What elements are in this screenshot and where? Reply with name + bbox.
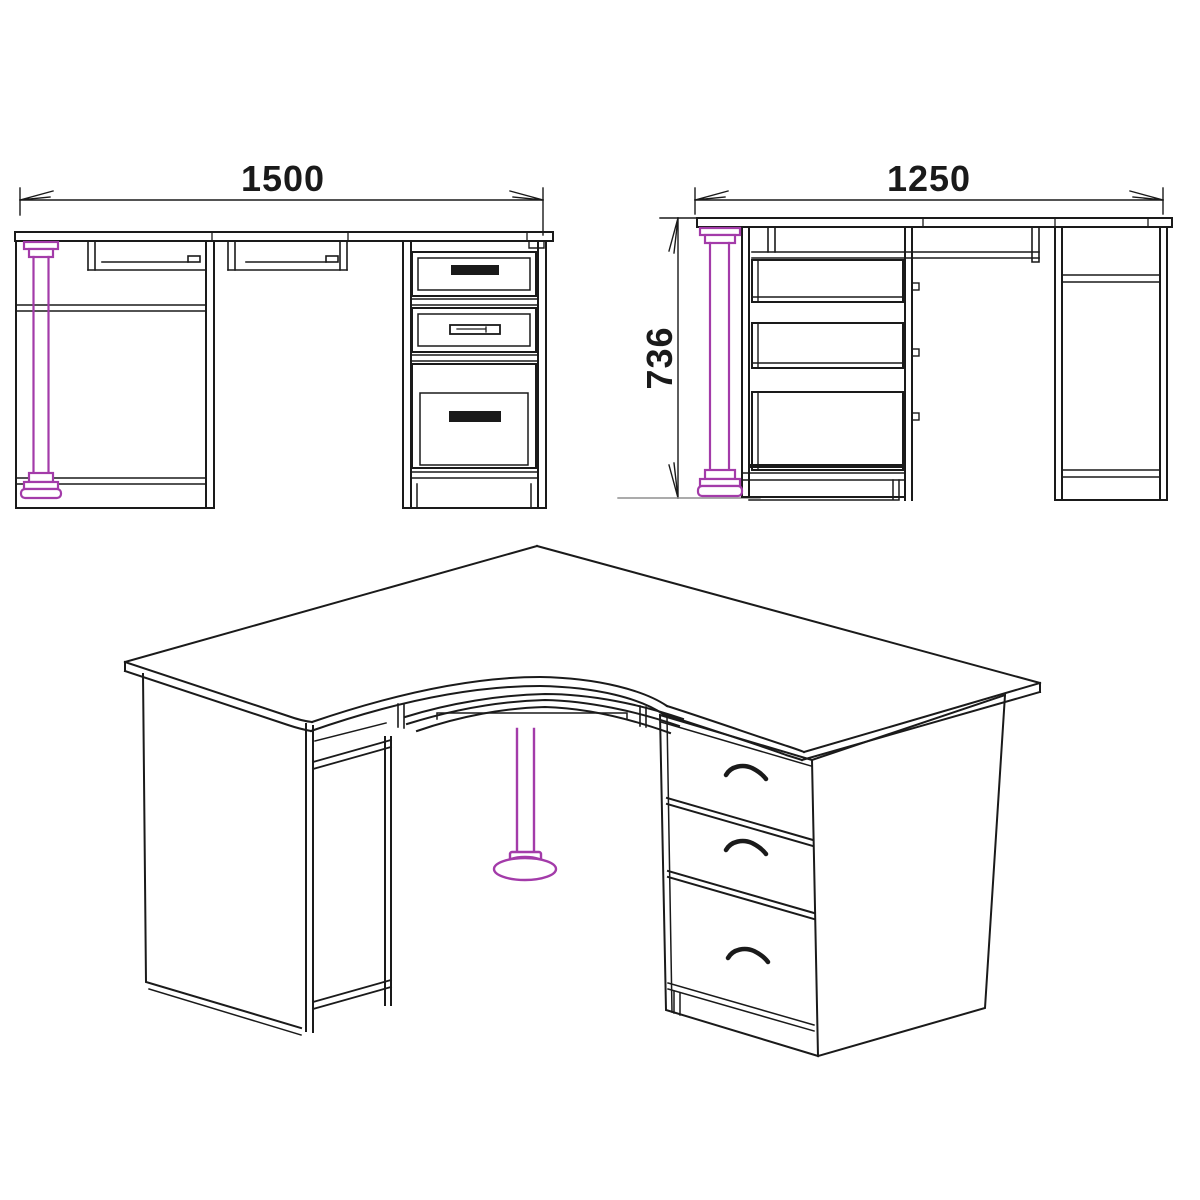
front-keyboard-tray-center [228,241,347,270]
iso-drawer2-handle [726,841,766,854]
front-drawer2-handle [450,325,500,334]
iso-left-pedestal [143,674,391,1035]
iso-metal-leg [494,729,556,880]
side-drawer-front-panel [905,227,919,500]
side-keyboard-tray [752,227,1039,262]
front-width-label: 1500 [241,158,325,199]
side-open-pedestal [1055,227,1167,500]
side-height-label: 736 [639,326,680,389]
iso-keyboard-tray [398,694,683,733]
front-metal-leg [21,242,61,498]
side-desktop [697,218,1172,227]
desk-drawing: 1500 [0,0,1200,1200]
iso-drawer3-handle [728,949,768,962]
side-view: 1250 736 [618,158,1172,500]
side-depth-label: 1250 [887,158,971,199]
side-back-panel [742,227,905,497]
side-metal-leg [698,228,742,496]
isometric-view [125,546,1040,1056]
front-left-pedestal [16,241,214,508]
technical-drawing-page: 1500 [0,0,1200,1200]
front-drawer1-handle [452,266,498,274]
front-keyboard-tray-left [88,241,206,270]
iso-drawer1-handle [726,766,766,779]
side-drawer-boxes [752,260,903,470]
front-view: 1500 [15,158,553,508]
side-plinth [742,473,905,500]
iso-drawer-pedestal [660,695,1005,1056]
front-drawer-pedestal [403,241,546,508]
iso-desktop [125,546,1040,760]
front-drawer3-handle [450,412,500,421]
front-desktop [15,232,553,241]
